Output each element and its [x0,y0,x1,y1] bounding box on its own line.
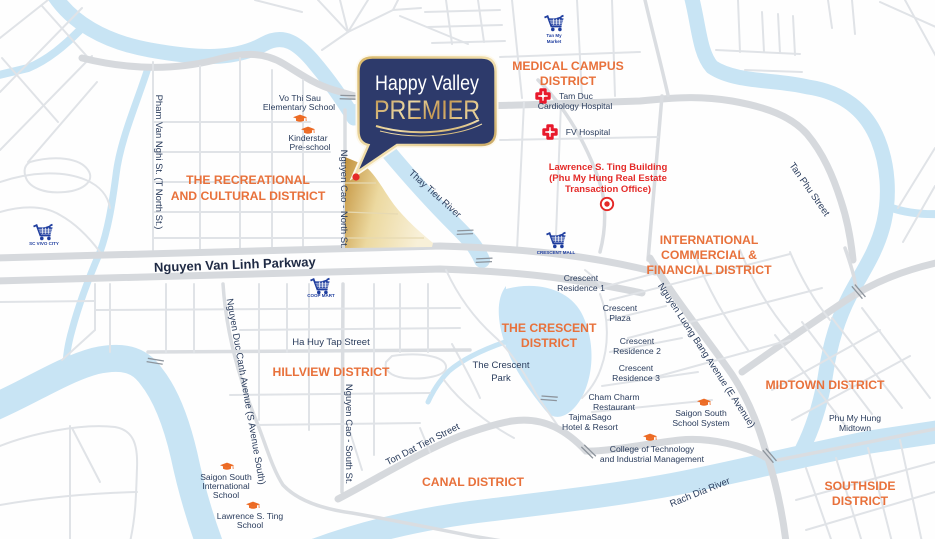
svg-text:Pham Van Nghi St. (T North St.: Pham Van Nghi St. (T North St.) [153,95,164,230]
svg-text:Crescent: Crescent [620,336,655,346]
svg-text:CANAL DISTRICT: CANAL DISTRICT [422,475,525,489]
svg-text:and Industrial Management: and Industrial Management [600,454,705,464]
svg-text:DISTRICT: DISTRICT [521,336,578,350]
svg-text:COOP MART: COOP MART [307,293,335,298]
svg-text:Residence 2: Residence 2 [613,346,661,356]
svg-text:Cardiology Hospital: Cardiology Hospital [538,101,613,111]
svg-text:Midtown: Midtown [839,423,871,433]
svg-text:SOUTHSIDE: SOUTHSIDE [824,479,895,493]
svg-text:THE RECREATIONAL: THE RECREATIONAL [186,173,310,187]
svg-text:THE CRESCENT: THE CRESCENT [502,321,597,335]
svg-text:FINANCIAL DISTRICT: FINANCIAL DISTRICT [646,263,772,277]
svg-text:Tam Duc: Tam Duc [559,91,594,101]
svg-text:MIDTOWN DISTRICT: MIDTOWN DISTRICT [766,378,885,392]
svg-text:Restaurant: Restaurant [593,402,636,412]
svg-text:Plaza: Plaza [609,313,631,323]
svg-text:DISTRICT: DISTRICT [832,494,889,508]
svg-text:Pre-school: Pre-school [289,142,330,152]
svg-text:Saigon South: Saigon South [675,408,727,418]
svg-text:Residence 3: Residence 3 [612,373,660,383]
svg-text:Market: Market [547,39,562,44]
svg-text:Nguyen Cao - South St.: Nguyen Cao - South St. [343,384,354,484]
svg-text:School: School [213,490,239,500]
svg-text:School System: School System [672,418,729,428]
svg-text:Lawrence S. Ting Building: Lawrence S. Ting Building [549,162,668,173]
svg-text:COMMERCIAL &: COMMERCIAL & [661,248,757,262]
svg-text:CRESCENT MALL: CRESCENT MALL [537,250,576,255]
svg-text:Hotel & Resort: Hotel & Resort [562,422,618,432]
svg-text:Park: Park [491,373,511,384]
svg-text:Happy Valley: Happy Valley [375,72,479,95]
svg-text:SC VIVO CITY: SC VIVO CITY [29,241,59,246]
svg-text:FV Hospital: FV Hospital [566,127,611,137]
svg-text:INTERNATIONAL: INTERNATIONAL [660,233,759,247]
svg-text:Ha Huy Tap Street: Ha Huy Tap Street [292,337,370,348]
svg-text:DISTRICT: DISTRICT [540,74,597,88]
svg-text:Residence 1: Residence 1 [557,283,605,293]
svg-text:Crescent: Crescent [619,363,654,373]
svg-text:AND CULTURAL DISTRICT: AND CULTURAL DISTRICT [171,189,326,203]
svg-text:(Phu My Hung Real Estate: (Phu My Hung Real Estate [549,173,667,184]
svg-text:College of Technology: College of Technology [610,444,695,454]
svg-text:Elementary School: Elementary School [263,102,335,112]
svg-text:HILLVIEW DISTRICT: HILLVIEW DISTRICT [273,365,390,379]
svg-text:MEDICAL CAMPUS: MEDICAL CAMPUS [512,59,624,73]
svg-text:The Crescent: The Crescent [472,360,529,371]
svg-text:Crescent: Crescent [603,303,638,313]
svg-text:Crescent: Crescent [564,273,599,283]
svg-text:Phu My Hung: Phu My Hung [829,413,881,423]
svg-text:Transaction Office): Transaction Office) [565,184,651,195]
svg-text:Tan My: Tan My [546,33,562,38]
svg-text:PREMIER: PREMIER [374,95,480,125]
svg-text:TajmaSago: TajmaSago [569,412,612,422]
svg-text:Nguyen Cao - North St.: Nguyen Cao - North St. [338,150,349,249]
svg-text:School: School [237,520,263,530]
svg-text:Cham Charm: Cham Charm [588,392,639,402]
